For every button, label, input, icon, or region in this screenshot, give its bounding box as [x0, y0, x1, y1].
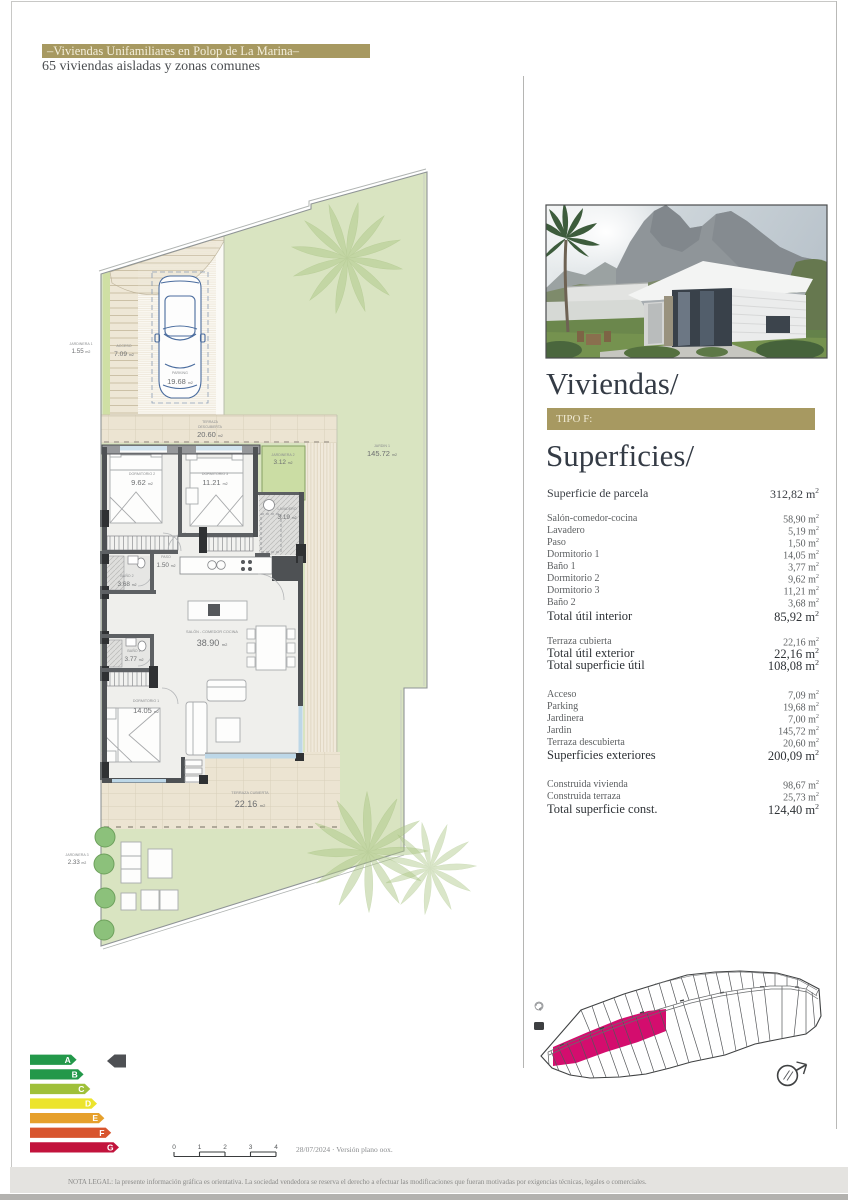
svg-text:BAÑO 2: BAÑO 2 [120, 573, 133, 578]
svg-text:2.33 m2: 2.33 m2 [68, 859, 87, 866]
svg-text:2: 2 [223, 1144, 227, 1151]
svg-text:3.19 m2: 3.19 m2 [278, 514, 297, 521]
svg-text:JARDINERA 1: JARDINERA 1 [69, 342, 92, 346]
svg-text:ACCESO: ACCESO [116, 344, 131, 348]
svg-text:1.50 m2: 1.50 m2 [157, 562, 176, 569]
svg-text:3.12 m2: 3.12 m2 [274, 459, 293, 466]
svg-text:PASO: PASO [161, 555, 171, 559]
svg-text:DORMITORIO 2: DORMITORIO 2 [129, 472, 155, 476]
svg-text:3.68 m2: 3.68 m2 [118, 581, 137, 588]
svg-text:C: C [78, 1084, 84, 1094]
svg-text:DESCUBIERTA: DESCUBIERTA [198, 425, 223, 429]
svg-text:0: 0 [172, 1144, 176, 1151]
svg-text:3: 3 [249, 1144, 253, 1151]
svg-text:TERRAZA: TERRAZA [202, 420, 219, 424]
svg-text:B: B [72, 1069, 78, 1079]
svg-text:3.77 m2: 3.77 m2 [125, 656, 144, 663]
svg-text:E: E [92, 1113, 98, 1123]
svg-text:DORMITORIO 1: DORMITORIO 1 [133, 699, 159, 703]
svg-text:JARDIN 1: JARDIN 1 [374, 444, 390, 448]
svg-text:4: 4 [274, 1144, 278, 1151]
svg-text:LAVADERO: LAVADERO [277, 507, 296, 511]
svg-text:DORMITORIO 3: DORMITORIO 3 [202, 472, 228, 476]
svg-text:PARKING: PARKING [172, 371, 188, 375]
svg-text:G: G [107, 1142, 114, 1152]
svg-text:TERRAZA CUBIERTA: TERRAZA CUBIERTA [231, 791, 269, 795]
svg-text:SALÓN - COMEDOR COCINA: SALÓN - COMEDOR COCINA [186, 629, 238, 634]
svg-text:7.09 m2: 7.09 m2 [114, 351, 134, 358]
svg-text:JARDINERA 3: JARDINERA 3 [65, 853, 88, 857]
svg-text:JARDINERA 2: JARDINERA 2 [271, 453, 294, 457]
svg-text:1: 1 [198, 1144, 202, 1151]
svg-text:BAÑO 1: BAÑO 1 [127, 648, 140, 653]
svg-text:1.55 m2: 1.55 m2 [72, 348, 91, 355]
svg-text:D: D [85, 1099, 91, 1109]
svg-text:A: A [65, 1055, 71, 1065]
svg-text:F: F [99, 1128, 104, 1138]
